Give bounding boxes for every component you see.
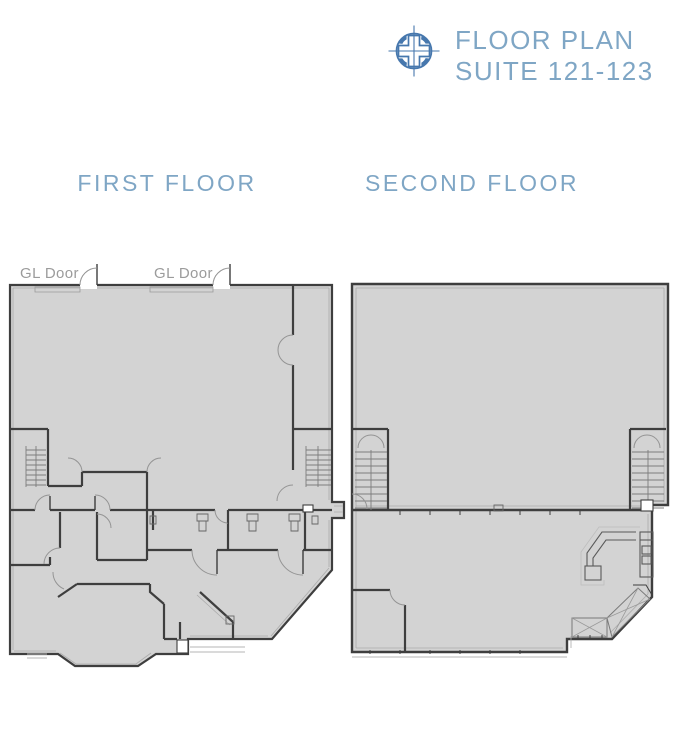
side-exit-door [303, 505, 313, 512]
header: FLOOR PLAN SUITE 121-123 [388, 24, 654, 87]
floor-plans-drawing: GL Door GL Door [0, 250, 681, 729]
floor-plan-page: FLOOR PLAN SUITE 121-123 FIRST FLOOR SEC… [0, 0, 681, 729]
bottom-entry-notch [177, 640, 188, 653]
title-line-1: FLOOR PLAN [455, 25, 654, 56]
gl-door-label-1: GL Door [20, 265, 79, 282]
second-floor-heading: SECOND FLOOR [365, 170, 579, 197]
gl-door-label-2: GL Door [154, 265, 213, 282]
page-title: FLOOR PLAN SUITE 121-123 [455, 25, 654, 87]
first-floor-plan: GL Door GL Door [10, 264, 344, 666]
right-stair-door [641, 500, 653, 511]
second-floor-outline [352, 284, 668, 652]
first-floor-heading: FIRST FLOOR [60, 170, 274, 197]
second-floor-plan [352, 284, 668, 657]
compass-logo-icon [388, 24, 440, 78]
title-line-2: SUITE 121-123 [455, 56, 654, 87]
